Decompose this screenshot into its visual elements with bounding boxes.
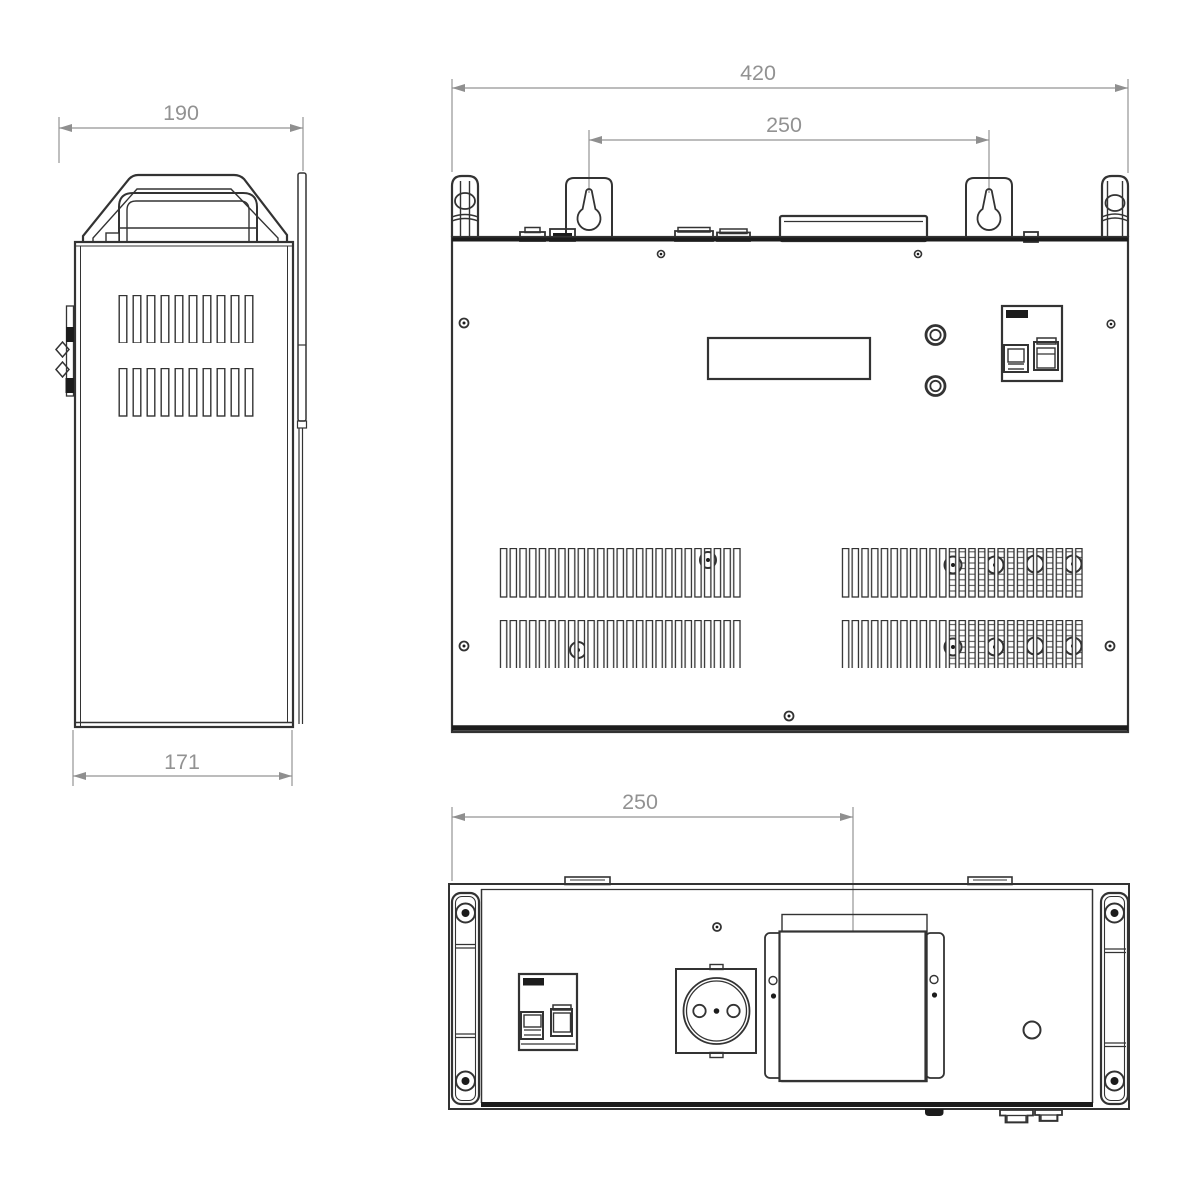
circuit-breaker-bottom [519,974,577,1050]
display-module [765,915,944,1082]
front-view: 420 250 [452,61,1128,732]
power-socket [676,965,756,1058]
arrowhead-icon [59,124,72,132]
keyhole-slot [978,189,1001,230]
socket-ground-pin [714,1008,720,1014]
bottom-edge-connectors [925,1109,1062,1123]
dimension-bottom-mount-offset: 250 [452,790,853,935]
control-button-bottom [926,377,945,396]
rubber-foot [925,1109,944,1116]
cable-entry-hole [1024,1022,1041,1039]
arrowhead-icon [452,813,465,821]
mount-rail-right [1101,893,1128,1104]
corner-bracket-right [1102,176,1128,237]
dim-label-front-mount-spacing: 250 [766,113,802,137]
dim-label-front-width: 420 [740,61,776,85]
mount-rail-left [452,893,479,1104]
arrowhead-icon [452,84,465,92]
arrowhead-icon [976,136,989,144]
keyhole-slot [578,189,601,230]
arrowhead-icon [840,813,853,821]
wall-mount-plate-edge [298,173,307,724]
display-window [708,338,870,379]
circuit-breaker-front [1002,306,1062,381]
socket-pin-hole [693,1005,705,1017]
socket-pin-hole [727,1005,739,1017]
drawing-sheet: 190 [0,0,1200,1200]
door-latches [56,306,74,396]
arrowhead-icon [1115,84,1128,92]
dim-label-side-width: 190 [163,101,199,125]
connector-port [1000,1110,1033,1123]
dimension-side-depth: 171 [73,730,292,786]
corner-bracket-left [452,176,478,237]
front-vents-right [841,548,1084,668]
screw-hole [713,923,721,931]
technical-drawing-canvas: 190 [0,0,1200,1200]
dim-label-bottom-mount-offset: 250 [622,790,658,814]
arrowhead-icon [589,136,602,144]
front-vents-left [499,548,742,668]
control-button-top [926,326,945,345]
bottom-view: 250 [449,790,1129,1123]
dimension-front-mount-spacing: 250 [589,113,989,193]
arrowhead-icon [279,772,292,780]
side-view: 190 [56,101,307,786]
arrowhead-icon [73,772,86,780]
dimension-side-width: 190 [59,101,303,171]
dim-label-side-depth: 171 [164,750,200,774]
side-vent-grid [118,295,258,417]
arrowhead-icon [290,124,303,132]
carry-handle [83,175,287,242]
